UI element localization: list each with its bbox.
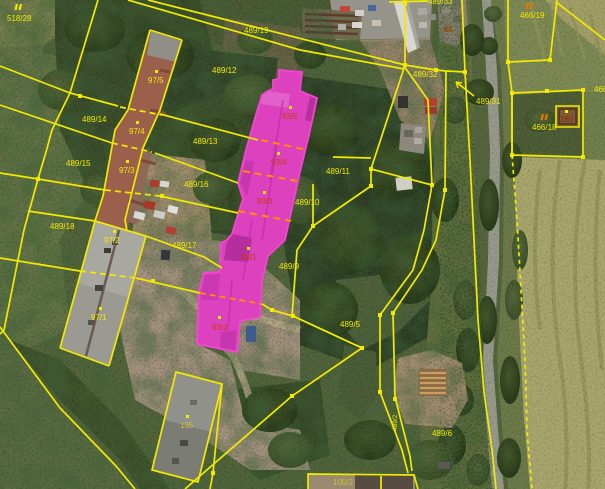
svg-text:466: 466 bbox=[594, 85, 605, 94]
svg-text:135: 135 bbox=[180, 421, 194, 430]
svg-text:466/18: 466/18 bbox=[532, 123, 557, 132]
svg-text:489/9: 489/9 bbox=[279, 262, 300, 271]
svg-text:93/1: 93/1 bbox=[241, 253, 257, 262]
svg-text:100/2: 100/2 bbox=[333, 478, 354, 487]
svg-text:489/18: 489/18 bbox=[50, 222, 75, 231]
svg-text:160: 160 bbox=[560, 115, 574, 124]
svg-text:489/14: 489/14 bbox=[82, 115, 107, 124]
svg-text:93/5: 93/5 bbox=[282, 112, 298, 121]
svg-text:93/4: 93/4 bbox=[271, 158, 287, 167]
svg-text:489/16: 489/16 bbox=[184, 180, 209, 189]
svg-text:93/3: 93/3 bbox=[257, 197, 273, 206]
svg-text:489/5: 489/5 bbox=[340, 320, 361, 329]
svg-text:518/28: 518/28 bbox=[7, 14, 32, 23]
svg-text:489/17: 489/17 bbox=[172, 241, 197, 250]
svg-text:489/15: 489/15 bbox=[66, 159, 91, 168]
svg-text:489/19: 489/19 bbox=[244, 26, 269, 35]
svg-text:489/2: 489/2 bbox=[392, 414, 399, 431]
svg-text:489/31: 489/31 bbox=[476, 97, 501, 106]
svg-text:489/11: 489/11 bbox=[326, 167, 350, 176]
svg-text:97/2: 97/2 bbox=[104, 236, 120, 245]
svg-text:97/1: 97/1 bbox=[91, 313, 107, 322]
svg-text:489/32: 489/32 bbox=[413, 70, 438, 79]
svg-text:466/19: 466/19 bbox=[520, 11, 545, 20]
svg-text:93/2: 93/2 bbox=[212, 323, 228, 332]
svg-text:489/12: 489/12 bbox=[212, 66, 237, 75]
svg-text:489/6: 489/6 bbox=[432, 429, 453, 438]
svg-text:97/4: 97/4 bbox=[129, 127, 145, 136]
svg-text:489/13: 489/13 bbox=[193, 137, 218, 146]
svg-text:489/33: 489/33 bbox=[428, 0, 453, 6]
svg-text:97/3: 97/3 bbox=[119, 166, 135, 175]
svg-text:489/10: 489/10 bbox=[295, 198, 320, 207]
svg-text:97/5: 97/5 bbox=[148, 76, 164, 85]
